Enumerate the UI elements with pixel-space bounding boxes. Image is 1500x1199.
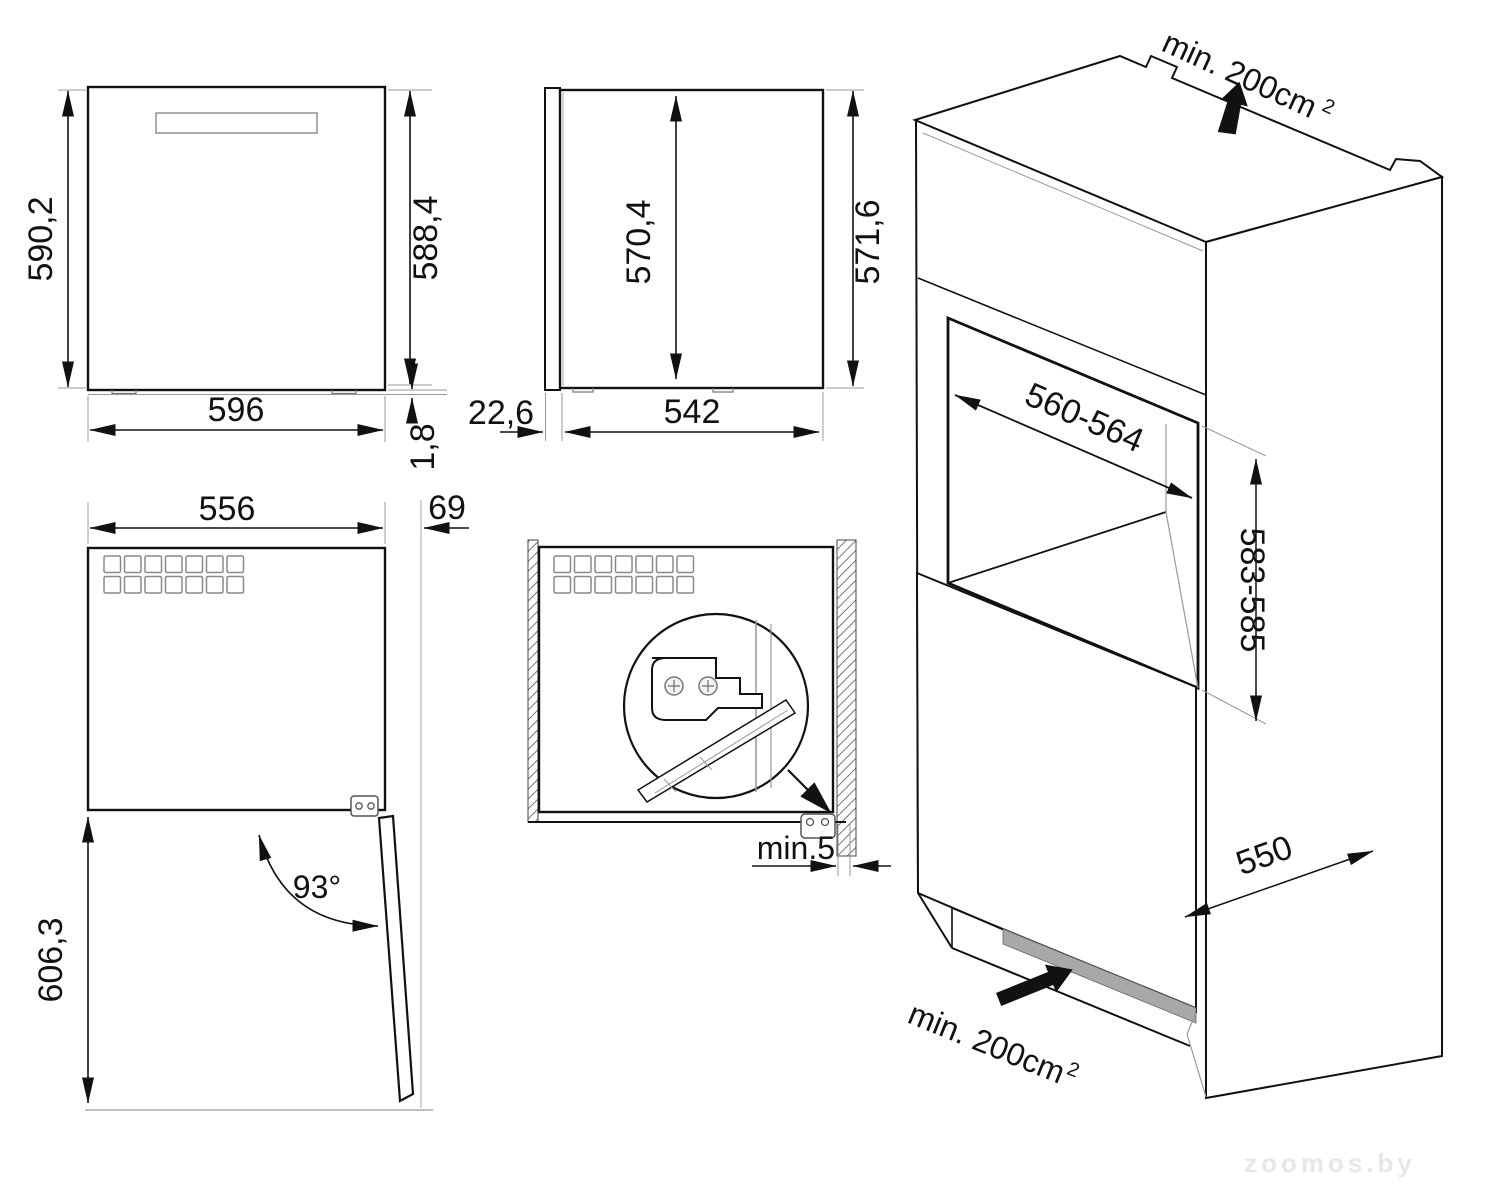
dim-door-thickness: 69	[428, 489, 466, 527]
dim-niche-height: 583-585	[1233, 528, 1271, 653]
cabinet-wall-right	[837, 540, 856, 856]
installation-drawing: 590,2 588,4 596 1,8 570,4 571,6 22,6 542	[0, 0, 1500, 1199]
watermark: zoomos.by	[1244, 1148, 1416, 1178]
dim-side-depth: 542	[664, 393, 721, 431]
dim-depth-open-door: 606,3	[32, 917, 70, 1002]
dim-body-width: 556	[199, 490, 256, 528]
side-view: 570,4 571,6 22,6 542	[468, 88, 887, 441]
label-bottom-vent-area: min. 200cm2	[903, 995, 1082, 1095]
dim-front-height-right: 588,4	[407, 195, 445, 280]
front-view: 590,2 588,4 596 1,8	[22, 87, 447, 471]
dim-door-offset: 22,6	[468, 394, 534, 432]
dim-foot-height: 1,8	[404, 423, 442, 470]
dim-side-clearance: min.5	[757, 830, 835, 866]
dim-opening-angle: 93°	[293, 869, 341, 905]
installed-view: min.5	[528, 540, 891, 876]
display-window	[156, 113, 317, 133]
door-side-outline	[545, 88, 560, 390]
label-top-vent-sup: 2	[1319, 95, 1338, 120]
drawing-canvas: 590,2 588,4 596 1,8 570,4 571,6 22,6 542	[0, 0, 1500, 1199]
label-bottom-vent-text: min. 200cm	[903, 995, 1070, 1090]
cabinet-wall-left	[528, 540, 538, 822]
dim-front-height-left: 590,2	[22, 196, 60, 281]
dim-side-height-inner: 570,4	[620, 199, 658, 284]
dim-front-width: 596	[208, 391, 265, 429]
isometric-view: 560-564 583-585 550 min. 200cm2 min. 200…	[903, 24, 1442, 1098]
body-side-outline	[560, 90, 823, 388]
dim-side-height-outer: 571,6	[849, 199, 887, 284]
open-door	[379, 816, 413, 1101]
open-door-view: 556 69 93° 606,3	[32, 489, 469, 1110]
